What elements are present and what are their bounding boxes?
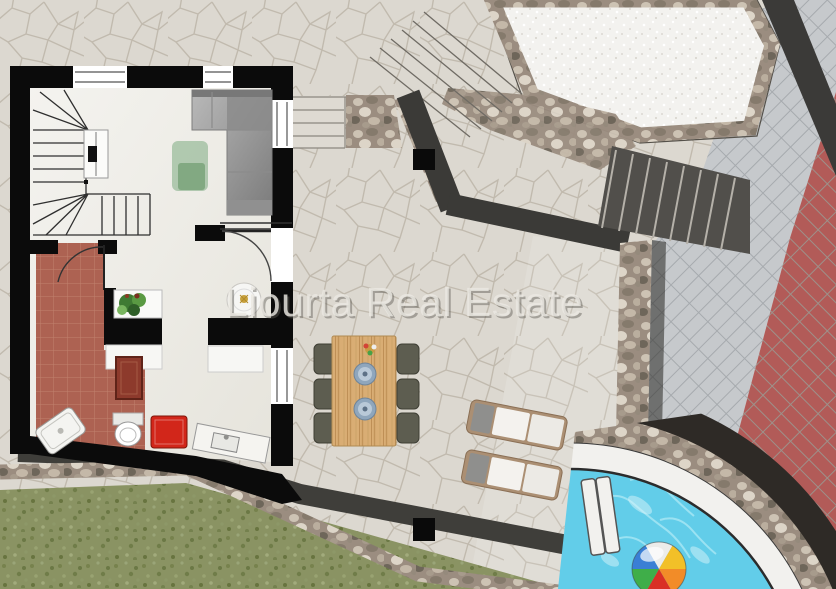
plan-canvas: Liourta Real Estate Liourta Real Estate: [0, 0, 836, 589]
window-right-1: [271, 100, 293, 148]
dining-set: [314, 336, 419, 446]
red-cabinet: [151, 416, 187, 448]
side-stone-band: [346, 95, 402, 148]
window-top-2: [203, 66, 233, 88]
toilet: [113, 413, 143, 446]
bathroom-wall-left: [30, 240, 58, 254]
plate: [354, 363, 376, 385]
wall-left: [10, 66, 30, 448]
tv-icon: [88, 146, 97, 162]
dining-table: [332, 336, 396, 446]
wall-under-shelf: [104, 318, 162, 345]
wall-stub-hall: [195, 225, 225, 241]
plate: [354, 398, 376, 420]
beach-ball: [632, 542, 686, 589]
window-top-1: [73, 66, 127, 88]
window-right-2: [271, 348, 293, 404]
tv-cabinet: [84, 130, 108, 178]
floor-plan-rendering: Liourta Real Estate Liourta Real Estate: [0, 0, 836, 589]
wall-top: [10, 66, 293, 88]
pergola-post: [413, 149, 435, 170]
pergola-post: [413, 518, 435, 541]
green-ottoman: [178, 163, 205, 190]
watermark-text: Liourta Real Estate: [225, 279, 583, 325]
side-table: [116, 357, 142, 399]
mid-right-stone-wall: [616, 240, 652, 436]
counter-right: [208, 346, 263, 372]
